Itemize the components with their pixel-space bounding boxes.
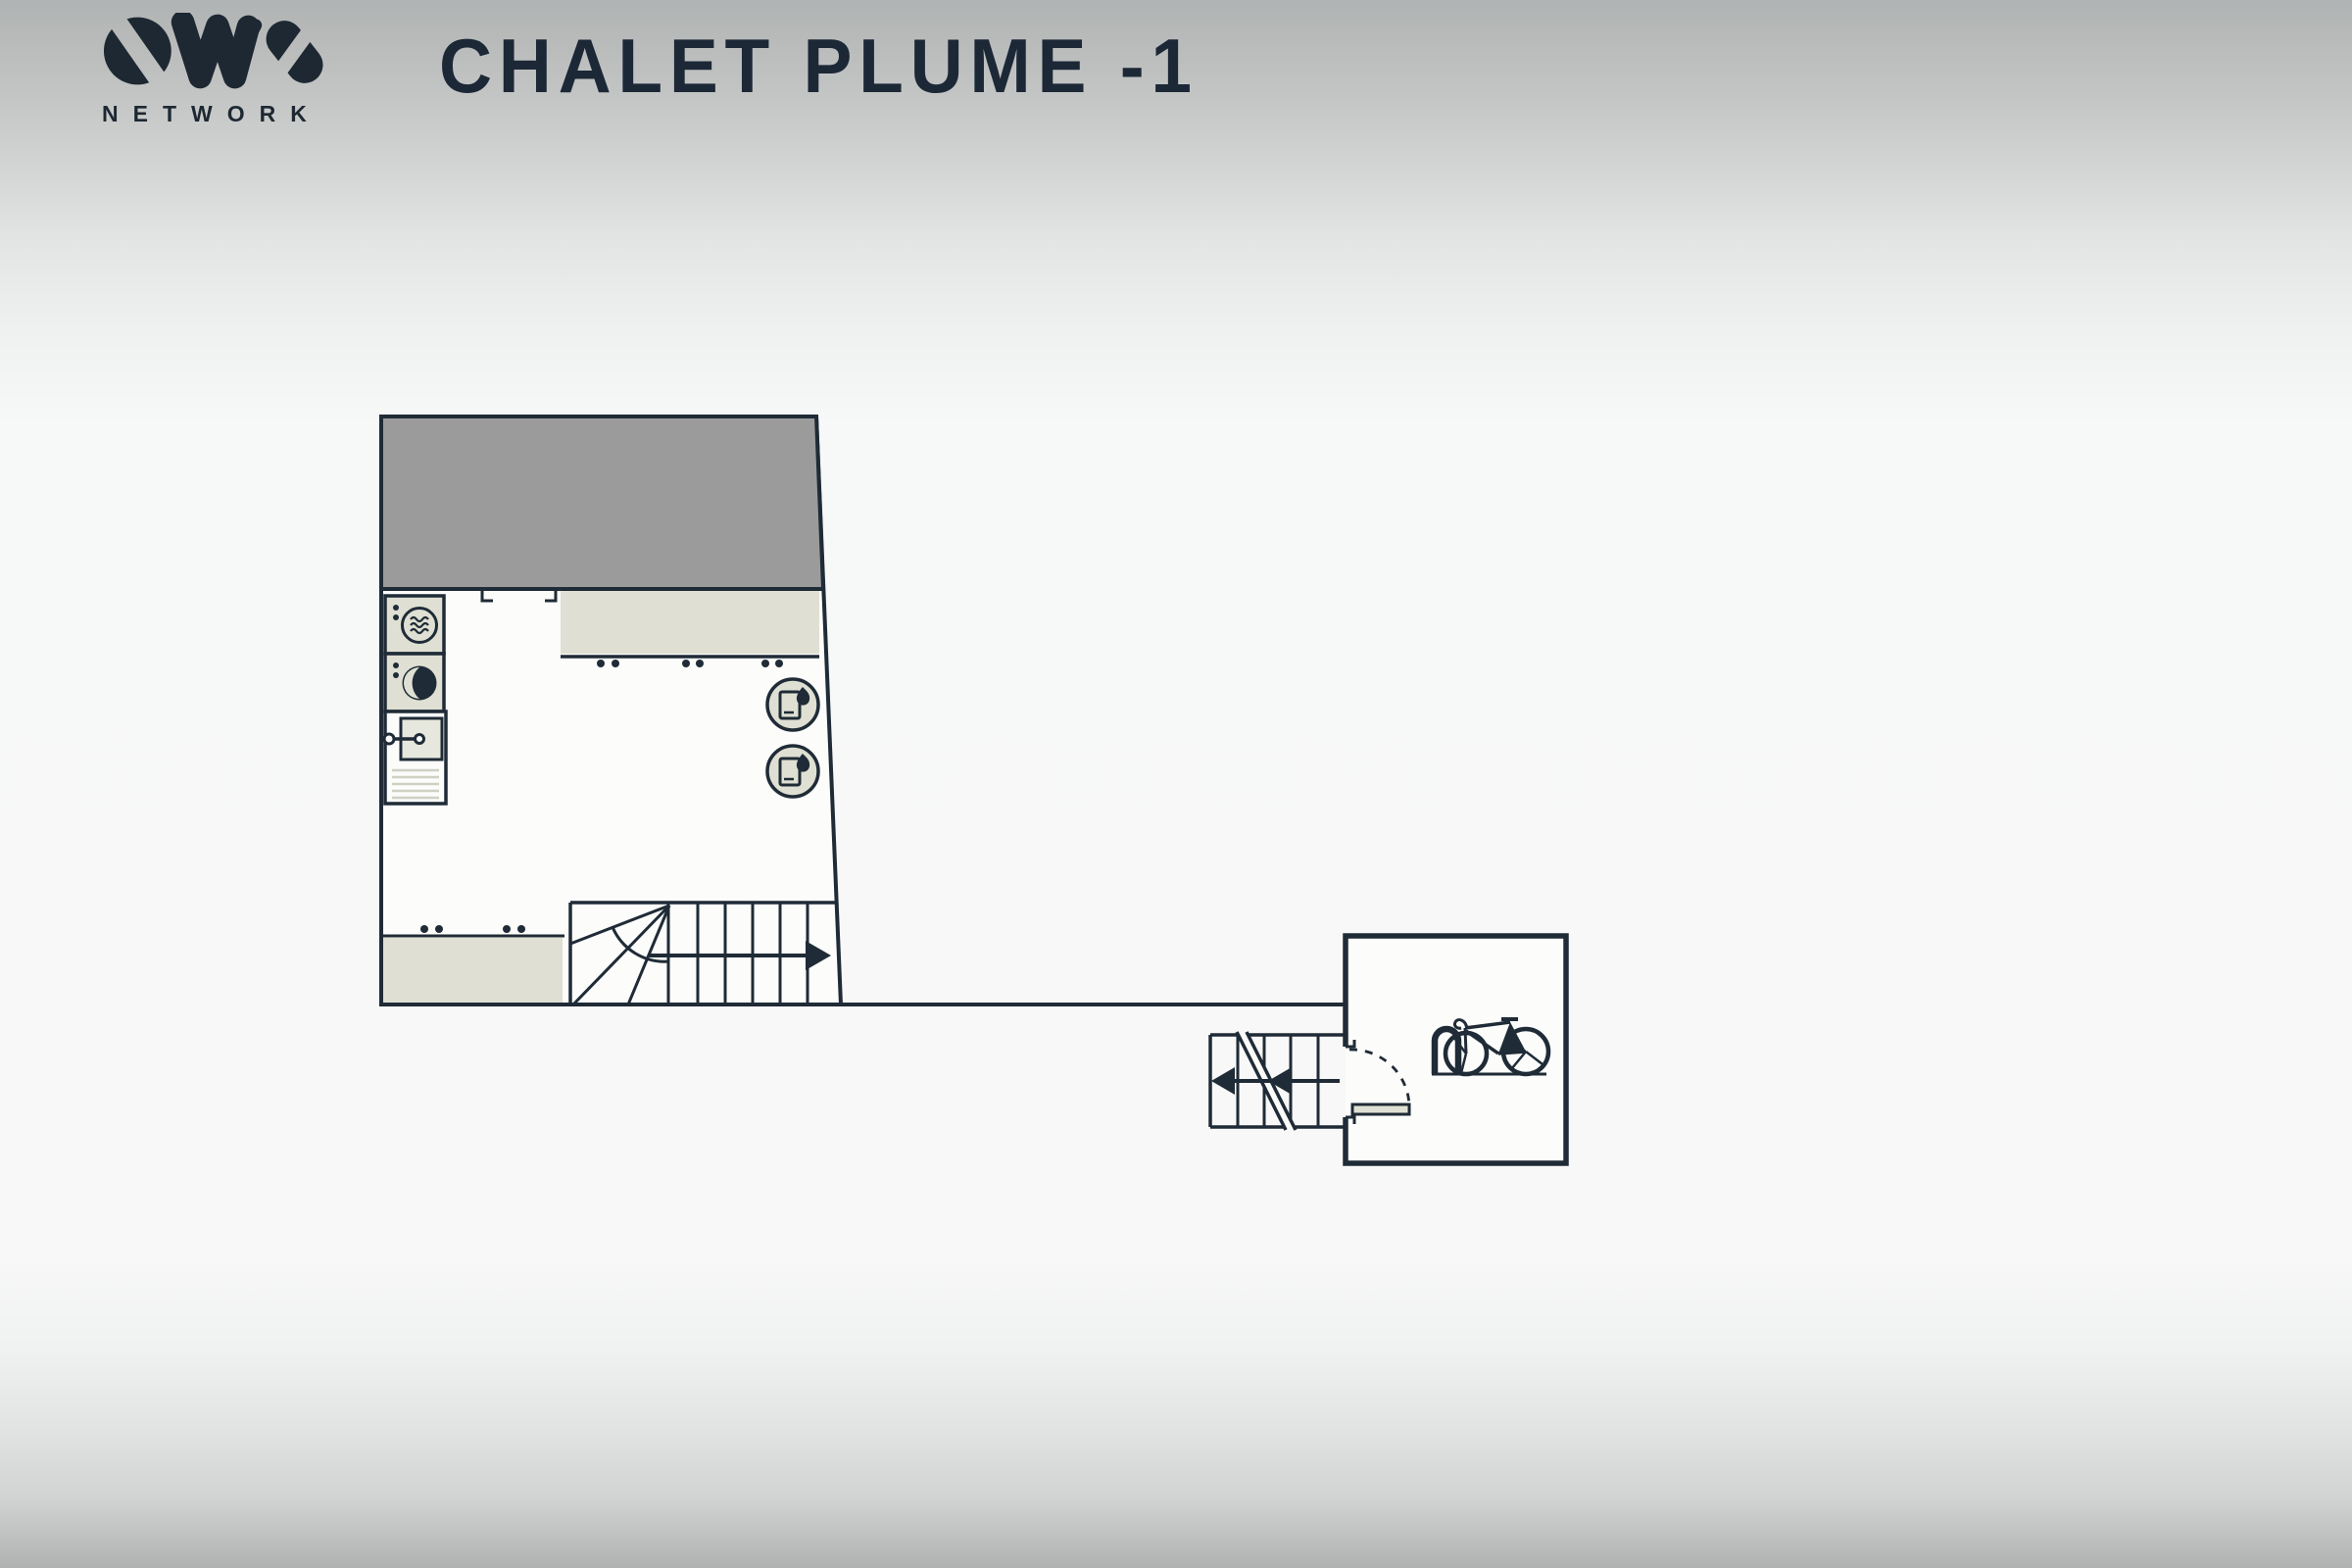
water-heater-icon: [767, 746, 818, 797]
washing-machine-icon: [385, 596, 444, 654]
bike-storage-room: [1346, 936, 1566, 1163]
tumble-dryer-icon: [385, 654, 444, 711]
garage-zone: [381, 416, 823, 589]
water-heater-icon: [767, 679, 818, 730]
counter-top: [561, 591, 819, 667]
floor-plan: [0, 0, 2352, 1568]
counter-bottom: [383, 925, 564, 1003]
utility-cabinet-icon: [384, 711, 446, 804]
door-leaf: [1352, 1104, 1409, 1114]
page: NETWORK CHALET PLUME -1: [0, 0, 2352, 1568]
exterior-steps: [1210, 1032, 1346, 1130]
